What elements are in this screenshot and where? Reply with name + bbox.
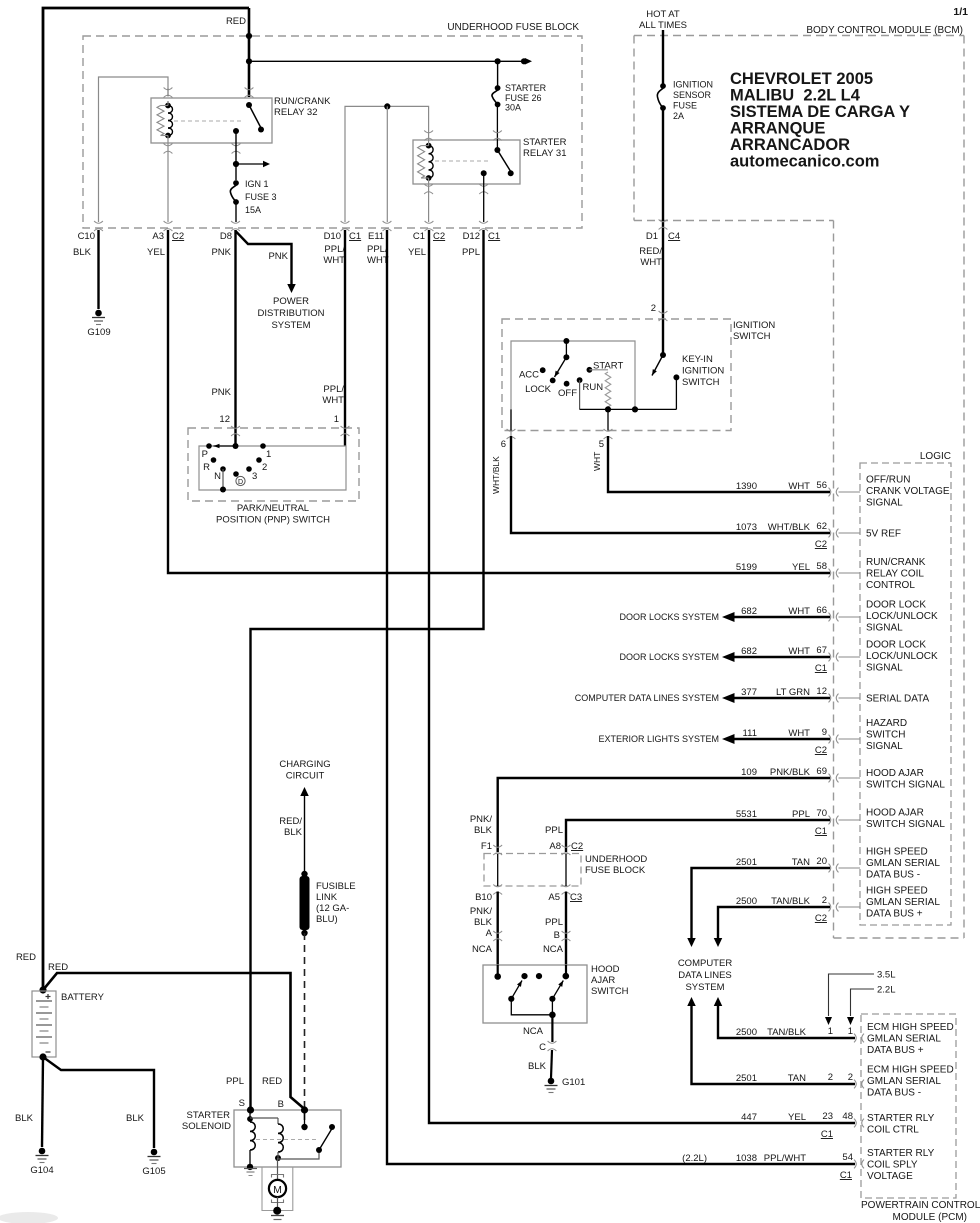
svg-text:UNDERHOOD: UNDERHOOD [585,854,647,865]
svg-text:ARRANQUE: ARRANQUE [730,120,825,138]
svg-text:C1: C1 [840,1170,852,1181]
svg-text:48: 48 [842,1111,853,1122]
svg-text:BLK: BLK [284,827,303,838]
svg-text:RUN/CRANK: RUN/CRANK [274,96,331,107]
svg-text:SERIAL DATA: SERIAL DATA [866,694,929,705]
svg-text:C3: C3 [570,892,582,903]
svg-text:GMLAN SERIAL: GMLAN SERIAL [866,858,940,869]
svg-text:POSITION (PNP) SWITCH: POSITION (PNP) SWITCH [216,515,330,526]
svg-text:HOOD AJAR: HOOD AJAR [866,807,924,818]
svg-text:C2: C2 [571,841,583,852]
svg-text:PARK/NEUTRAL: PARK/NEUTRAL [237,503,309,514]
svg-text:BLK: BLK [73,247,92,258]
svg-text:ACC: ACC [519,370,539,381]
svg-text:12: 12 [816,686,827,697]
svg-text:2: 2 [822,895,827,906]
svg-text:C1: C1 [815,663,827,674]
svg-text:5V REF: 5V REF [866,529,901,540]
svg-text:DISTRIBUTION: DISTRIBUTION [257,308,324,319]
svg-text:BLK: BLK [474,825,493,836]
svg-text:A8: A8 [549,841,561,852]
svg-text:P: P [202,449,208,460]
svg-text:(12 GA-: (12 GA- [316,903,349,914]
svg-text:C2: C2 [815,913,827,924]
svg-text:M: M [273,1184,282,1196]
svg-text:RED: RED [226,16,246,27]
svg-text:DOOR LOCK: DOOR LOCK [866,640,926,651]
svg-text:POWERTRAIN CONTROL: POWERTRAIN CONTROL [861,1200,980,1211]
svg-text:C: C [539,1042,546,1053]
svg-text:NCA: NCA [543,944,564,955]
svg-text:STARTER: STARTER [505,83,547,93]
svg-text:STARTER: STARTER [187,1110,231,1121]
svg-text:BODY CONTROL MODULE (BCM): BODY CONTROL MODULE (BCM) [806,25,963,36]
svg-text:PNK/: PNK/ [470,906,493,917]
svg-text:CRANK VOLTAGE: CRANK VOLTAGE [866,486,950,497]
svg-text:62: 62 [816,521,827,532]
svg-text:ECM HIGH SPEED: ECM HIGH SPEED [867,1065,954,1076]
svg-text:ECM HIGH SPEED: ECM HIGH SPEED [867,1022,954,1033]
svg-text:BLU): BLU) [316,914,338,925]
svg-text:HIGH SPEED: HIGH SPEED [866,886,928,897]
svg-text:12: 12 [219,414,230,425]
svg-text:C2: C2 [815,745,827,756]
svg-text:447: 447 [741,1112,757,1123]
svg-text:CHEVROLET 2005: CHEVROLET 2005 [730,70,873,88]
svg-text:PPL: PPL [226,1076,244,1087]
svg-text:E11: E11 [368,231,384,242]
svg-text:RED: RED [16,952,36,963]
svg-text:DOOR LOCKS SYSTEM: DOOR LOCKS SYSTEM [619,652,719,662]
svg-text:67: 67 [816,645,827,656]
svg-text:1/1: 1/1 [953,6,968,18]
svg-text:1: 1 [848,1026,853,1037]
svg-text:FUSE: FUSE [673,101,697,111]
svg-text:D1: D1 [646,231,658,242]
svg-text:111: 111 [743,728,757,739]
svg-text:N: N [214,471,221,482]
svg-text:YEL: YEL [792,562,810,573]
svg-text:BLK: BLK [528,1061,547,1072]
svg-text:DATA BUS +: DATA BUS + [866,909,923,920]
svg-text:SIGNAL: SIGNAL [866,498,903,509]
svg-text:SENSOR: SENSOR [673,90,712,100]
svg-text:23: 23 [822,1111,833,1122]
svg-text:BLK: BLK [15,1113,34,1124]
svg-text:BLK: BLK [474,917,493,928]
svg-text:SOLENOID: SOLENOID [182,1121,231,1132]
svg-text:PPL: PPL [545,917,563,928]
svg-text:G105: G105 [142,1166,165,1177]
svg-text:WHT: WHT [788,606,810,617]
svg-text:STARTER RLY: STARTER RLY [867,1148,935,1159]
svg-text:IGN 1: IGN 1 [245,179,269,189]
svg-text:PNK: PNK [268,251,288,262]
svg-text:C2: C2 [815,539,827,550]
svg-text:D: D [238,479,243,486]
svg-text:LT GRN: LT GRN [776,687,810,698]
svg-text:ARRANCADOR: ARRANCADOR [730,136,850,154]
svg-text:PPL: PPL [545,825,563,836]
svg-text:69: 69 [816,766,827,777]
svg-text:1: 1 [334,414,339,425]
svg-text:WHT: WHT [640,257,662,268]
svg-text:3: 3 [252,471,257,482]
svg-text:682: 682 [741,606,757,617]
svg-text:PNK: PNK [211,247,231,258]
svg-text:FUSE 26: FUSE 26 [505,93,542,103]
svg-text:C1: C1 [349,231,361,242]
svg-text:C1: C1 [821,1129,833,1140]
svg-text:C10: C10 [78,231,95,242]
svg-text:DATA BUS -: DATA BUS - [867,1088,921,1099]
svg-text:C4: C4 [668,231,680,242]
svg-text:YEL: YEL [788,1112,806,1123]
svg-text:LOCK/UNLOCK: LOCK/UNLOCK [866,611,938,622]
svg-text:DATA BUS -: DATA BUS - [866,870,920,881]
svg-text:AJAR: AJAR [591,975,615,986]
svg-text:C2: C2 [433,231,445,242]
svg-text:PPL/: PPL/ [367,244,388,255]
svg-text:D10: D10 [324,231,341,242]
svg-text:C2: C2 [172,231,184,242]
svg-text:POWER: POWER [273,296,309,307]
svg-text:PNK/BLK: PNK/BLK [770,767,811,778]
svg-text:PNK/: PNK/ [470,814,493,825]
svg-text:SISTEMA DE CARGA Y: SISTEMA DE CARGA Y [730,103,910,121]
svg-text:SYSTEM: SYSTEM [271,320,310,331]
svg-text:PNK: PNK [211,387,231,398]
svg-text:COIL CTRL: COIL CTRL [867,1124,919,1135]
svg-text:377: 377 [741,687,757,698]
svg-text:SWITCH SIGNAL: SWITCH SIGNAL [866,819,945,830]
svg-text:PPL/: PPL/ [324,244,345,255]
svg-text:F1: F1 [481,841,492,852]
svg-text:MODULE (PCM): MODULE (PCM) [893,1212,967,1223]
svg-text:2: 2 [848,1072,853,1083]
svg-text:9: 9 [822,727,827,738]
svg-text:LINK: LINK [316,892,338,903]
svg-text:HOOD: HOOD [591,964,620,975]
svg-text:LOGIC: LOGIC [920,451,951,462]
svg-text:R: R [203,462,210,473]
svg-text:30A: 30A [505,103,521,113]
svg-text:NCA: NCA [472,944,493,955]
svg-text:RED/: RED/ [279,816,302,827]
svg-text:56: 56 [816,480,827,491]
svg-text:WHT: WHT [788,646,810,657]
svg-text:HOOD AJAR: HOOD AJAR [866,768,924,779]
svg-text:BLK: BLK [126,1113,145,1124]
svg-text:3.5L: 3.5L [877,970,896,981]
svg-text:SWITCH: SWITCH [682,377,720,388]
svg-text:2: 2 [651,303,656,314]
svg-text:70: 70 [816,808,827,819]
svg-text:SIGNAL: SIGNAL [866,741,903,752]
svg-text:1073: 1073 [736,522,757,533]
svg-text:S: S [239,1098,245,1109]
svg-text:1038: 1038 [736,1153,757,1164]
svg-text:COIL SPLY: COIL SPLY [867,1160,918,1171]
svg-text:WHT: WHT [788,481,810,492]
svg-text:15A: 15A [245,205,261,215]
svg-text:C1: C1 [488,231,500,242]
svg-text:IGNITION: IGNITION [682,366,724,377]
svg-text:LOCK/UNLOCK: LOCK/UNLOCK [866,651,938,662]
svg-text:RED: RED [262,1076,282,1087]
svg-text:G101: G101 [562,1077,585,1088]
svg-text:RELAY 31: RELAY 31 [523,148,566,159]
svg-text:COMPUTER DATA LINES SYSTEM: COMPUTER DATA LINES SYSTEM [575,693,719,703]
svg-text:TAN/BLK: TAN/BLK [767,1027,807,1038]
svg-text:54: 54 [842,1152,853,1163]
svg-text:STARTER: STARTER [523,137,567,148]
svg-text:WHT: WHT [592,452,602,471]
svg-text:WHT: WHT [322,395,344,406]
svg-text:PPL/: PPL/ [323,384,344,395]
svg-text:20: 20 [816,856,827,867]
svg-text:SWITCH: SWITCH [591,986,629,997]
svg-text:2A: 2A [673,111,684,121]
svg-text:109: 109 [741,767,757,778]
svg-text:RUN/CRANK: RUN/CRANK [866,557,926,568]
svg-text:1: 1 [828,1026,833,1037]
svg-text:WHT: WHT [323,255,345,266]
svg-text:UNDERHOOD FUSE BLOCK: UNDERHOOD FUSE BLOCK [447,22,579,33]
svg-text:1390: 1390 [736,481,757,492]
svg-text:B10: B10 [475,892,492,903]
svg-text:WHT: WHT [788,728,810,739]
svg-text:FUSE BLOCK: FUSE BLOCK [585,865,646,876]
svg-text:A5: A5 [548,892,560,903]
svg-text:B: B [554,930,560,941]
svg-text:B: B [278,1099,284,1110]
svg-text:NCA: NCA [523,1026,544,1037]
svg-text:SIGNAL: SIGNAL [866,623,903,634]
svg-text:SYSTEM: SYSTEM [685,982,724,993]
svg-text:RED/: RED/ [639,246,662,257]
svg-text:PPL/WHT: PPL/WHT [764,1153,806,1164]
svg-text:PPL: PPL [792,809,810,820]
svg-text:C1: C1 [413,231,425,242]
svg-text:SWITCH: SWITCH [866,730,905,741]
svg-text:RED: RED [48,962,68,973]
svg-text:IGNITION: IGNITION [673,80,713,90]
svg-text:EXTERIOR LIGHTS SYSTEM: EXTERIOR LIGHTS SYSTEM [598,734,719,744]
svg-text:HIGH SPEED: HIGH SPEED [866,847,928,858]
svg-text:G109: G109 [87,327,110,338]
svg-text:IGNITION: IGNITION [733,320,775,331]
svg-text:OFF: OFF [558,388,577,399]
svg-text:A3: A3 [152,231,164,242]
svg-text:OFF/RUN: OFF/RUN [866,475,910,486]
svg-text:ALL TIMES: ALL TIMES [639,20,687,31]
svg-text:DATA BUS +: DATA BUS + [867,1045,924,1056]
svg-text:CIRCUIT: CIRCUIT [286,771,325,782]
svg-text:VOLTAGE: VOLTAGE [867,1171,913,1182]
svg-text:2: 2 [262,462,267,473]
svg-text:RELAY COIL: RELAY COIL [866,569,924,580]
svg-text:5531: 5531 [736,809,757,820]
svg-text:58: 58 [816,561,827,572]
svg-text:GMLAN SERIAL: GMLAN SERIAL [867,1076,941,1087]
svg-text:1: 1 [266,449,271,460]
svg-text:2.2L: 2.2L [877,985,896,996]
svg-text:WHT: WHT [367,255,389,266]
svg-text:SWITCH SIGNAL: SWITCH SIGNAL [866,779,945,790]
svg-text:TAN: TAN [792,857,810,868]
svg-text:DOOR LOCK: DOOR LOCK [866,600,926,611]
svg-text:HAZARD: HAZARD [866,718,907,729]
svg-text:5199: 5199 [736,562,757,573]
svg-text:HOT AT: HOT AT [646,9,680,20]
svg-text:CHARGING: CHARGING [279,759,330,770]
svg-text:D12: D12 [463,231,480,242]
svg-text:(2.2L): (2.2L) [682,1153,707,1164]
svg-text:SIGNAL: SIGNAL [866,663,903,674]
svg-text:FUSE 3: FUSE 3 [245,192,277,202]
svg-text:2501: 2501 [736,857,757,868]
svg-text:RUN: RUN [583,382,604,393]
svg-text:2: 2 [828,1072,833,1083]
svg-text:WHT/BLK: WHT/BLK [768,522,811,533]
svg-text:WHT/BLK: WHT/BLK [491,456,501,494]
svg-text:FUSIBLE: FUSIBLE [316,881,356,892]
svg-text:2500: 2500 [736,896,757,907]
svg-text:GMLAN SERIAL: GMLAN SERIAL [866,897,940,908]
svg-text:A: A [486,928,493,939]
svg-text:GMLAN SERIAL: GMLAN SERIAL [867,1034,941,1045]
svg-text:RELAY 32: RELAY 32 [274,107,317,118]
svg-text:MALIBU 2.2L L4: MALIBU 2.2L L4 [730,87,861,105]
svg-text:682: 682 [741,646,757,657]
svg-text:TAN/BLK: TAN/BLK [771,896,811,907]
svg-text:D8: D8 [220,231,232,242]
svg-text:BATTERY: BATTERY [61,992,105,1003]
svg-text:2501: 2501 [736,1073,757,1084]
svg-text:G104: G104 [30,1165,53,1176]
svg-text:5: 5 [599,439,604,450]
svg-text:COMPUTER: COMPUTER [678,958,733,969]
svg-text:DATA LINES: DATA LINES [678,970,732,981]
svg-text:TAN: TAN [788,1073,806,1084]
svg-text:YEL: YEL [147,247,165,258]
svg-text:66: 66 [816,605,827,616]
svg-text:KEY-IN: KEY-IN [682,354,713,365]
svg-text:STARTER RLY: STARTER RLY [867,1113,935,1124]
svg-text:2500: 2500 [736,1027,757,1038]
svg-text:LOCK: LOCK [525,384,552,395]
svg-text:SWITCH: SWITCH [733,331,771,342]
svg-text:automecanico.com: automecanico.com [730,153,879,171]
svg-text:DOOR LOCKS SYSTEM: DOOR LOCKS SYSTEM [619,612,719,622]
svg-text:6: 6 [501,439,506,450]
svg-text:YEL: YEL [408,247,426,258]
svg-text:CONTROL: CONTROL [866,580,915,591]
svg-text:C1: C1 [815,826,827,837]
svg-text:PPL: PPL [462,247,480,258]
